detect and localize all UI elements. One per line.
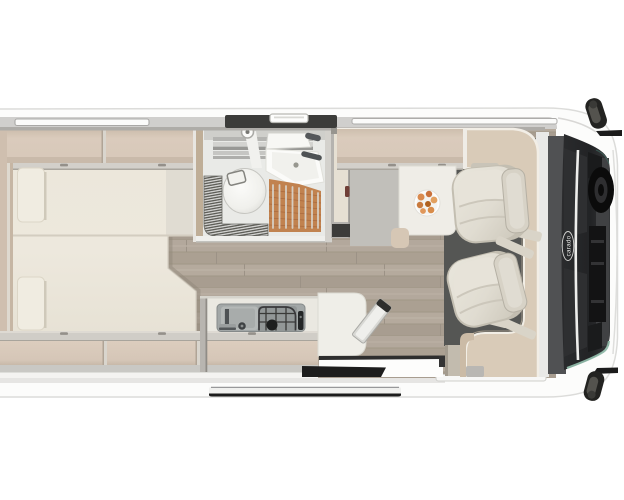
svg-text:carado: carado (565, 235, 572, 256)
